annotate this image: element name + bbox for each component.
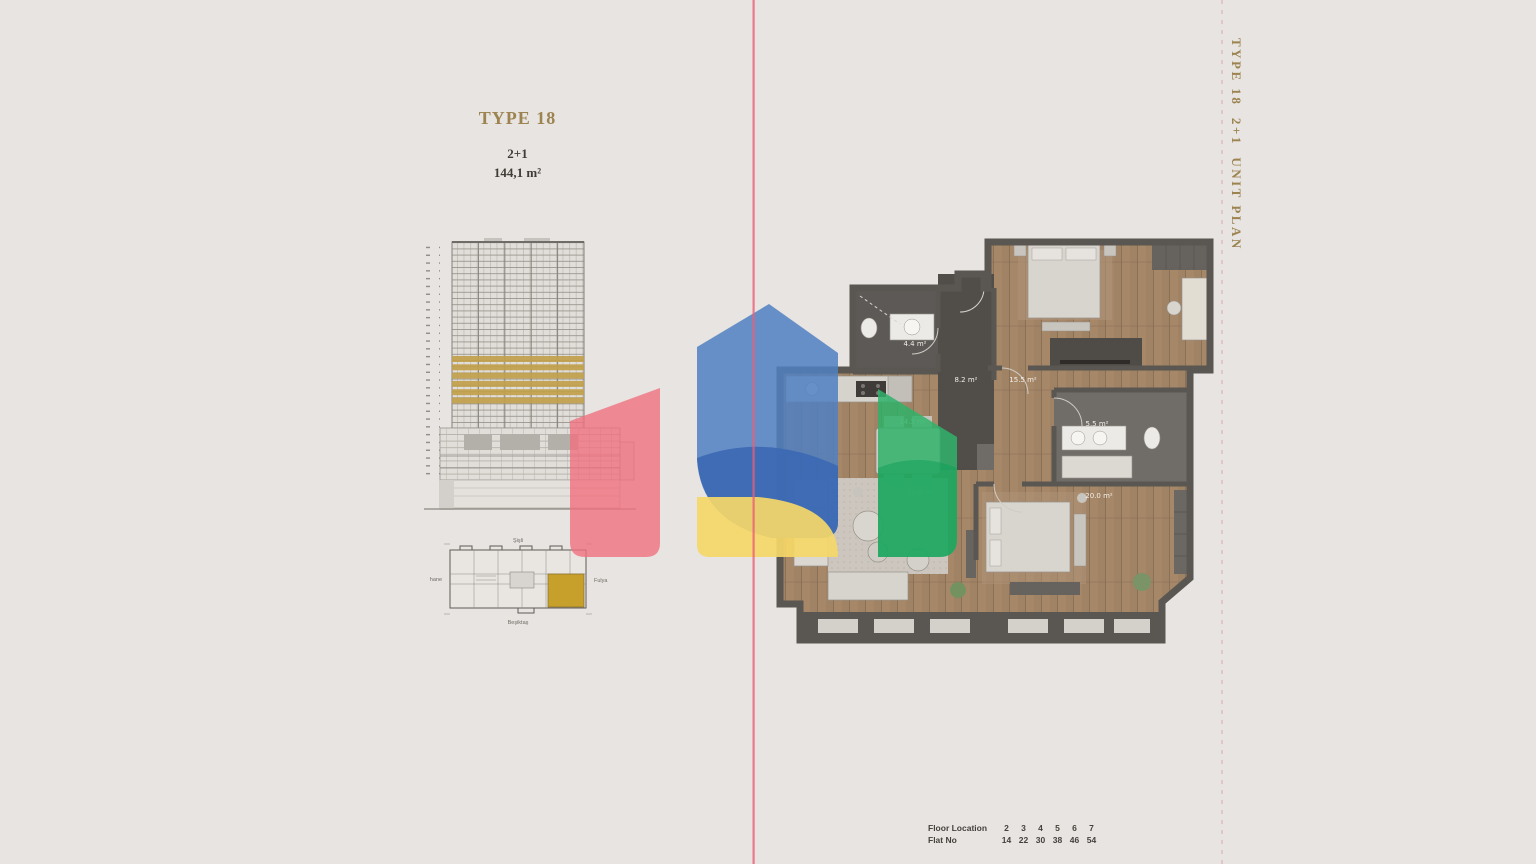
flat-value: 46 bbox=[1066, 835, 1083, 845]
room-area-label: 8.2 m² bbox=[955, 376, 978, 384]
balcony-band bbox=[800, 612, 1162, 640]
floor-value: 2 bbox=[998, 823, 1015, 833]
unit-layout-label: 2+1 bbox=[430, 146, 605, 162]
room-area-label: 4.4 m² bbox=[904, 340, 927, 348]
flat-value: 14 bbox=[998, 835, 1015, 845]
key-plan-core bbox=[510, 572, 534, 588]
side-vertical-label: TYPE 18 2+1 UNIT PLAN bbox=[1228, 38, 1244, 251]
key-plan-north-label: Şişli bbox=[513, 538, 523, 544]
flat-value: 30 bbox=[1032, 835, 1049, 845]
flat-value: 54 bbox=[1083, 835, 1100, 845]
room-area-label: 14.3 m² bbox=[899, 418, 927, 426]
room-area-label: 15.5 m² bbox=[1009, 376, 1037, 384]
floor-value: 7 bbox=[1083, 823, 1100, 833]
flat-no-label: Flat No bbox=[928, 835, 998, 845]
podium bbox=[440, 428, 634, 480]
base bbox=[424, 480, 636, 510]
key-plan: Şişli Kağıthane Fulya Beşiktaş bbox=[430, 534, 620, 629]
page-title: TYPE 18 bbox=[430, 108, 605, 129]
flat-value: 38 bbox=[1049, 835, 1066, 845]
watermark-overlay bbox=[0, 0, 1536, 864]
key-plan-east-label: Fulya bbox=[594, 578, 608, 584]
flat-value: 22 bbox=[1015, 835, 1032, 845]
key-plan-highlight-unit bbox=[548, 574, 584, 607]
floor-location-table: Floor Location 2 3 4 5 6 7 Flat No 14 22… bbox=[928, 823, 1100, 845]
entrance-floor bbox=[938, 274, 994, 470]
hall-closet bbox=[977, 444, 994, 470]
unit-plan-page: TYPE 18 2+1 144,1 m² bbox=[0, 0, 1536, 864]
center-divider-line bbox=[753, 0, 755, 864]
kitchen-furniture bbox=[786, 376, 912, 402]
floor-tick-labels bbox=[426, 244, 440, 478]
room-area-label: 20.0 m² bbox=[1085, 492, 1113, 500]
title-block: TYPE 18 2+1 144,1 m² bbox=[430, 108, 605, 181]
floor-plan: 4.4 m² 8.2 m² 15.5 m² 5.5 m² 14.3 m² 20.… bbox=[770, 230, 1220, 650]
floor-value: 3 bbox=[1015, 823, 1032, 833]
floor-value: 5 bbox=[1049, 823, 1066, 833]
floor-location-label: Floor Location bbox=[928, 823, 998, 833]
floor-value: 4 bbox=[1032, 823, 1049, 833]
building-elevation bbox=[424, 236, 639, 526]
floor-value: 6 bbox=[1066, 823, 1083, 833]
unit-area-label: 144,1 m² bbox=[430, 165, 605, 181]
key-plan-west-label: Kağıthane bbox=[430, 577, 442, 583]
room-area-label: 20.9 m² bbox=[907, 489, 935, 497]
key-plan-south-label: Beşiktaş bbox=[508, 620, 529, 626]
room-area-label: 5.5 m² bbox=[1086, 420, 1109, 428]
